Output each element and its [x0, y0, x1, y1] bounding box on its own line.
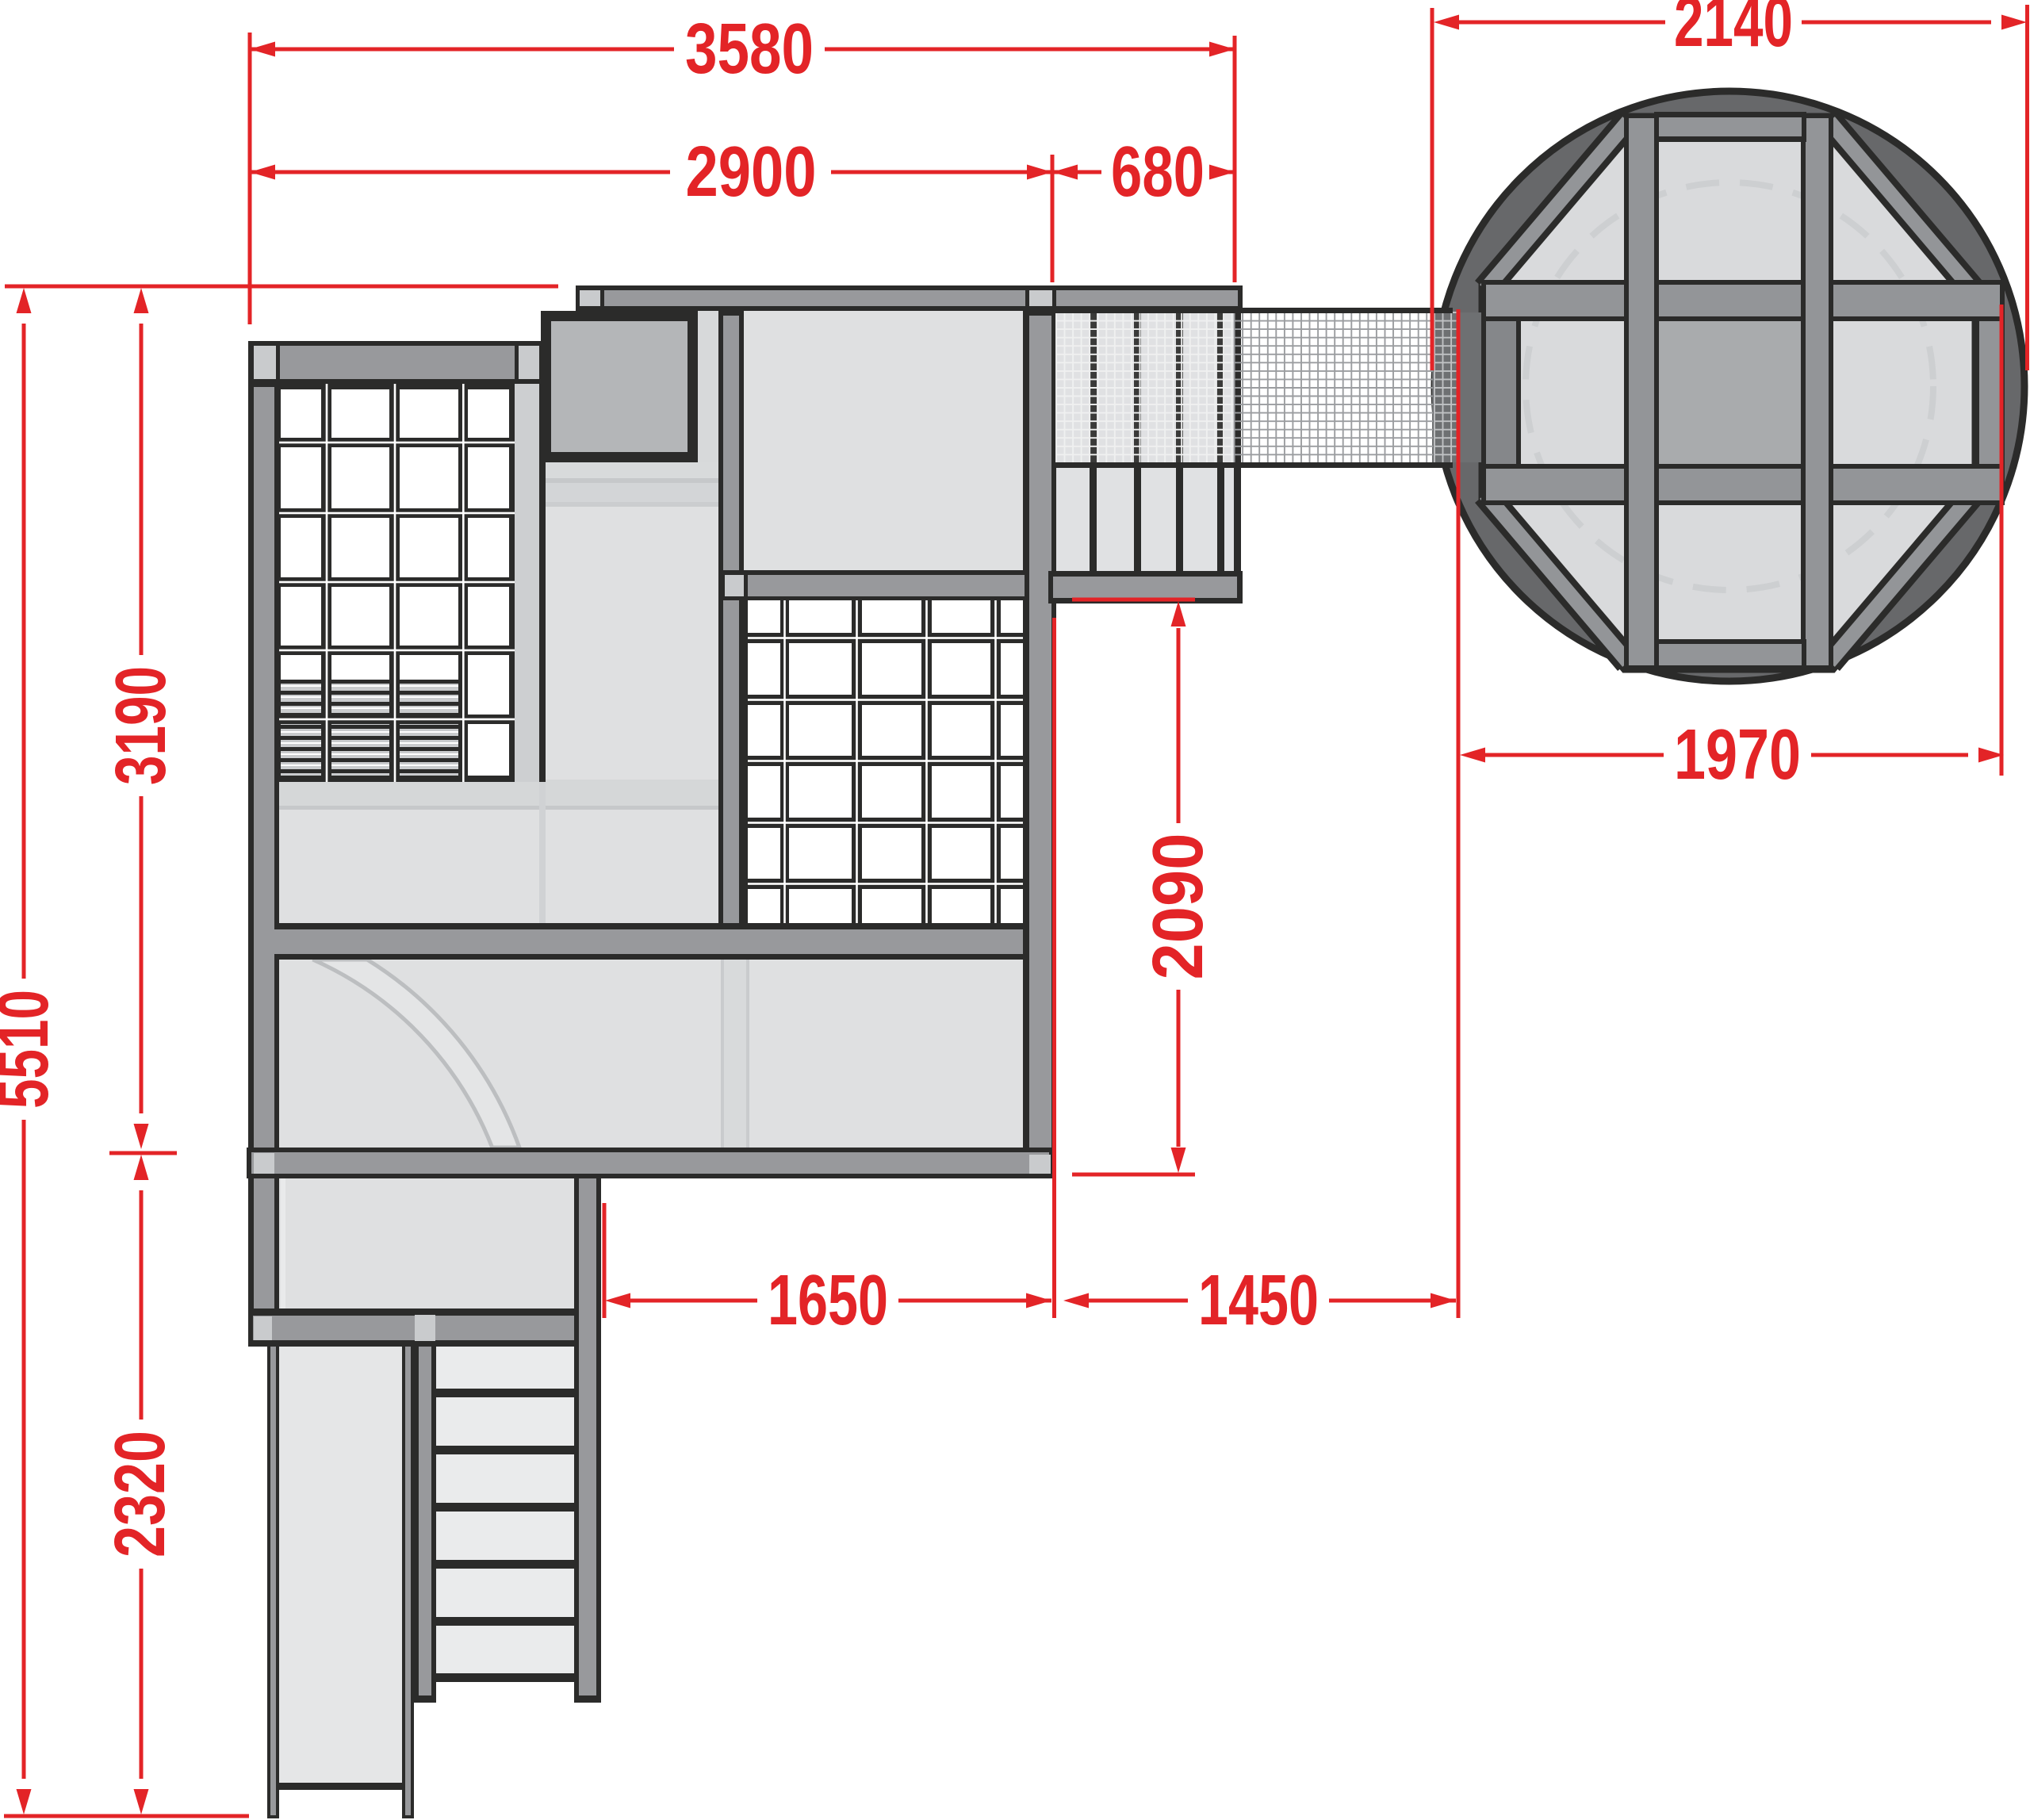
- svg-text:1650: 1650: [768, 1261, 888, 1340]
- svg-text:5510: 5510: [0, 990, 63, 1109]
- svg-text:1970: 1970: [1674, 715, 1801, 795]
- svg-text:3580: 3580: [685, 10, 814, 89]
- svg-text:2320: 2320: [101, 1431, 180, 1558]
- svg-text:680: 680: [1111, 132, 1205, 212]
- svg-text:2090: 2090: [1139, 833, 1218, 980]
- svg-text:3190: 3190: [101, 666, 181, 785]
- svg-text:2900: 2900: [686, 132, 817, 212]
- svg-text:1450: 1450: [1198, 1261, 1319, 1340]
- svg-text:2140: 2140: [1674, 0, 1793, 62]
